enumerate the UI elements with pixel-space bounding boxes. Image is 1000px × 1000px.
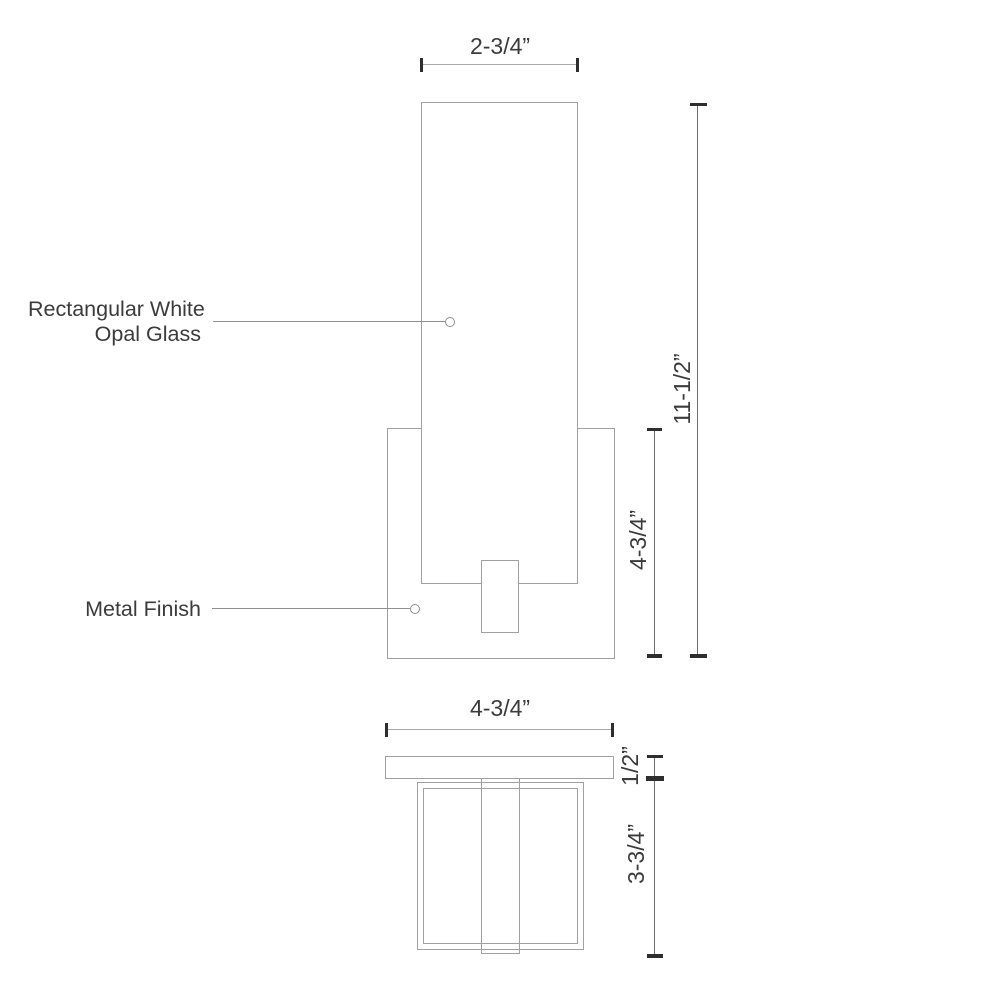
plan-backplate-outline [385, 756, 614, 779]
mounting-arm-outline [481, 560, 519, 633]
backplate-height-dimension-tick-top [647, 428, 662, 431]
plan-arm-outline [481, 778, 520, 954]
plan-width-dimension-tick-left [385, 723, 388, 737]
front-width-dimension-tick-right [576, 58, 579, 72]
plan-plate-depth-dimension-label: 1/2” [617, 731, 643, 801]
front-width-dimension-line [422, 64, 578, 65]
metal-callout-label: Metal Finish [28, 597, 201, 622]
metal-callout-leader-line [212, 608, 410, 609]
plan-glass-depth-dimension-label: 3-3/4” [623, 799, 649, 909]
glass-callout-leader-circle [445, 317, 455, 327]
plan-width-dimension-tick-right [611, 723, 614, 737]
plan-depth-dimension-tick-bottom [647, 954, 663, 958]
glass-callout-label: Rectangular White Opal Glass [28, 297, 201, 347]
front-height-dimension-tick-top [690, 103, 707, 106]
front-height-dimension-label: 11-1/2” [669, 329, 695, 449]
plan-depth-dimension-tick-top [647, 755, 663, 758]
plan-width-dimension-label: 4-3/4” [387, 695, 613, 722]
backplate-height-dimension-label: 4-3/4” [625, 490, 651, 590]
front-width-dimension-tick-left [420, 58, 423, 72]
glass-callout-line2: Opal Glass [28, 322, 201, 347]
glass-callout-line1: Rectangular White [28, 297, 201, 322]
backplate-height-dimension-tick-bottom [647, 654, 662, 658]
sconce-dimension-drawing: 2-3/4” 11-1/2” 4-3/4” Rectangular White … [0, 0, 1000, 1000]
glass-callout-leader-line [213, 321, 445, 322]
metal-callout-leader-circle [410, 604, 420, 614]
backplate-height-dimension-line [654, 430, 655, 656]
front-height-dimension-line [697, 105, 698, 656]
plan-depth-dimension-tick-middle [646, 776, 664, 781]
plan-depth-dimension-line [654, 757, 655, 957]
front-width-dimension-label: 2-3/4” [422, 33, 578, 60]
plan-width-dimension-line [387, 729, 613, 730]
front-height-dimension-tick-bottom [690, 654, 707, 658]
glass-outline [421, 102, 578, 584]
